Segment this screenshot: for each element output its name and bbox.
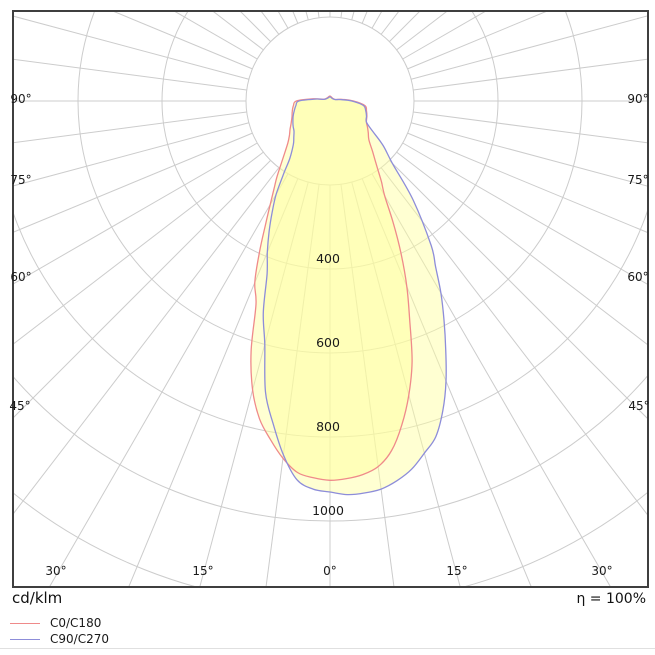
angle-tick-label: 15° <box>192 564 213 578</box>
bottom-divider <box>0 648 655 649</box>
angle-tick-label: 30° <box>591 564 612 578</box>
unit-label: cd/klm <box>12 589 62 607</box>
angle-tick-label: 90° <box>627 92 648 106</box>
legend-label: C90/C270 <box>50 632 109 646</box>
polar-intensity-chart: 90°90°75°75°60°60°45°45°30°30°15°15°0°40… <box>0 0 655 655</box>
angle-tick-label: 60° <box>10 270 31 284</box>
angle-tick-label: 75° <box>10 173 31 187</box>
legend-label: C0/C180 <box>50 616 101 630</box>
angle-tick-label: 60° <box>627 270 648 284</box>
legend: C0/C180 C90/C270 <box>10 615 109 647</box>
angle-tick-label: 45° <box>9 399 30 413</box>
angle-tick-label: 15° <box>446 564 467 578</box>
angle-tick-label: 45° <box>628 399 649 413</box>
photometric-diagram: 90°90°75°75°60°60°45°45°30°30°15°15°0°40… <box>0 0 655 655</box>
legend-item-c0-c180: C0/C180 <box>10 615 109 631</box>
angle-tick-label: 90° <box>10 92 31 106</box>
radial-value-label: 1000 <box>312 503 344 518</box>
angle-tick-label: 30° <box>45 564 66 578</box>
radial-value-label: 400 <box>316 251 340 266</box>
angle-tick-label: 0° <box>323 564 337 578</box>
radial-value-label: 600 <box>316 335 340 350</box>
radial-value-label: 800 <box>316 419 340 434</box>
legend-item-c90-c270: C90/C270 <box>10 631 109 647</box>
c90-c270-line-swatch <box>10 639 40 640</box>
c0-c180-line-swatch <box>10 623 40 624</box>
efficiency-label: η = 100% <box>576 591 646 607</box>
angle-tick-label: 75° <box>627 173 648 187</box>
